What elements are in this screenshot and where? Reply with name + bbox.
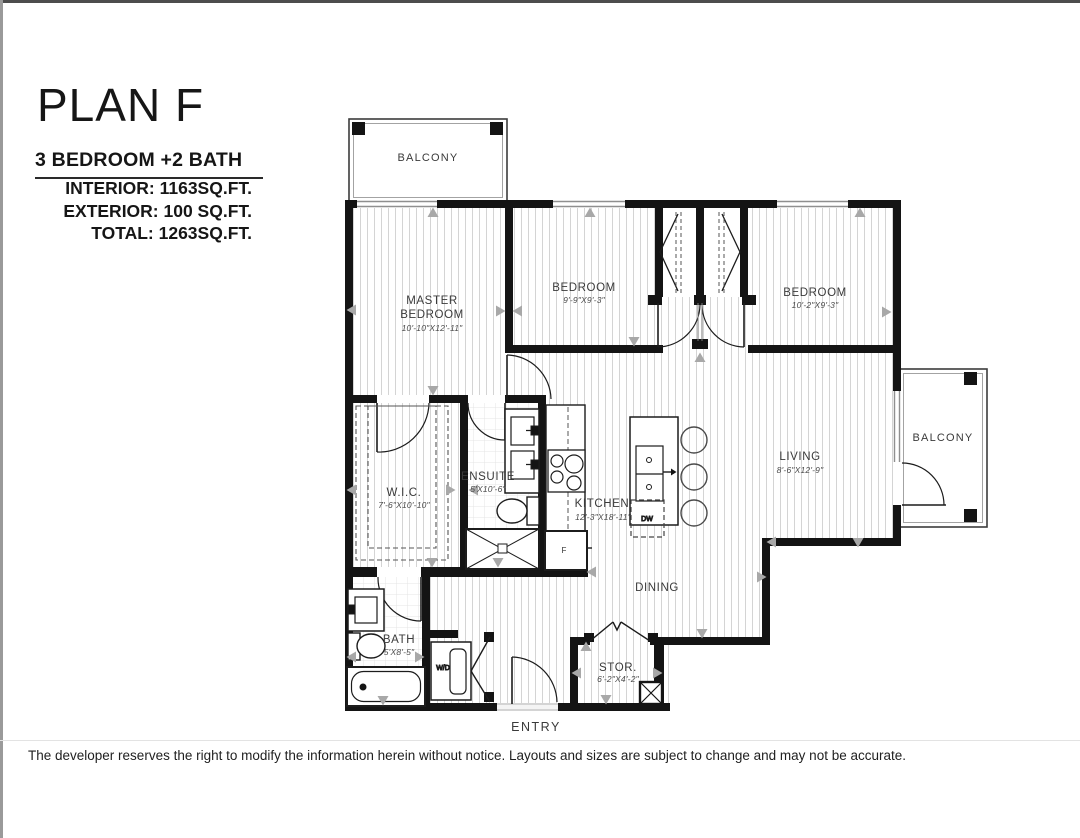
svg-text:BEDROOM: BEDROOM xyxy=(400,309,464,321)
fixture-kitchen-island: DW xyxy=(630,417,678,537)
window-bedroom2 xyxy=(777,200,848,208)
fixture-storage-box xyxy=(640,682,662,704)
spec-total: TOTAL: 1263SQ.FT. xyxy=(91,223,252,243)
cooktop-icon xyxy=(548,450,585,492)
window-left-edge xyxy=(0,0,3,838)
window-top-edge xyxy=(0,0,1080,3)
floor-plan-drawing: F DW xyxy=(330,95,1010,745)
window-living xyxy=(893,391,901,462)
svg-text:LIVING: LIVING xyxy=(779,451,820,463)
fixture-fridge: F xyxy=(545,531,592,570)
window-master xyxy=(357,200,437,208)
label-entry: ENTRY xyxy=(511,720,561,734)
fixture-ensuite-toilet xyxy=(497,497,539,525)
door-balcony xyxy=(902,463,946,505)
wd-label: W/D xyxy=(436,665,450,672)
plan-subtitle: 3 BEDROOM +2 BATH xyxy=(35,149,263,179)
fixture-washer-dryer: W/D xyxy=(431,642,471,700)
label-bath: BATH 5'X8'-5" xyxy=(383,634,415,657)
label-bedroom2: BEDROOM 10'-2"X9'-3" xyxy=(783,287,847,310)
svg-text:MASTER: MASTER xyxy=(406,295,458,307)
spec-interior: INTERIOR: 1163SQ.FT. xyxy=(65,178,252,198)
svg-text:10'-10"X12'-11": 10'-10"X12'-11" xyxy=(402,323,464,333)
svg-text:8'-6"X12'-9": 8'-6"X12'-9" xyxy=(777,465,824,475)
svg-text:12'-3"X18'-11": 12'-3"X18'-11" xyxy=(575,512,632,522)
footer-divider xyxy=(0,740,1080,741)
fixture-shower xyxy=(466,529,539,569)
disclaimer-text: The developer reserves the right to modi… xyxy=(28,748,906,763)
plan-specs: INTERIOR: 1163SQ.FT. EXTERIOR: 100 SQ.FT… xyxy=(37,177,252,245)
svg-text:6'-2"X4'-2": 6'-2"X4'-2" xyxy=(597,674,640,684)
label-balcony-top: BALCONY xyxy=(398,152,459,164)
svg-text:KITCHEN: KITCHEN xyxy=(575,498,630,510)
entry-threshold xyxy=(497,703,558,711)
svg-text:7'-6"X10'-10": 7'-6"X10'-10" xyxy=(378,500,430,510)
svg-text:BATH: BATH xyxy=(383,634,415,646)
svg-text:BEDROOM: BEDROOM xyxy=(552,282,616,294)
balcony-right-structure xyxy=(899,369,987,527)
label-dining: DINING xyxy=(635,582,679,594)
label-storage: STOR. 6'-2"X4'-2" xyxy=(597,662,640,684)
plan-title: PLAN F xyxy=(37,78,204,132)
svg-text:ENSUITE: ENSUITE xyxy=(461,471,515,483)
window-bedroom1 xyxy=(553,200,625,208)
fixture-bath-vanity xyxy=(348,589,384,631)
svg-text:9'-9"X9'-3": 9'-9"X9'-3" xyxy=(563,295,606,305)
label-master-bedroom: MASTER BEDROOM 10'-10"X12'-11" xyxy=(400,295,464,333)
svg-text:5'X10'-6": 5'X10'-6" xyxy=(470,484,506,494)
spec-exterior: EXTERIOR: 100 SQ.FT. xyxy=(63,201,252,221)
svg-text:W.I.C.: W.I.C. xyxy=(387,487,422,499)
dishwasher-label: DW xyxy=(641,516,653,523)
floorplan-page: PLAN F 3 BEDROOM +2 BATH INTERIOR: 1163S… xyxy=(0,0,1080,838)
svg-text:BEDROOM: BEDROOM xyxy=(783,287,847,299)
svg-text:STOR.: STOR. xyxy=(599,662,637,674)
svg-text:5'X8'-5": 5'X8'-5" xyxy=(384,647,415,657)
label-balcony-right: BALCONY xyxy=(913,432,974,444)
svg-text:10'-2"X9'-3": 10'-2"X9'-3" xyxy=(792,300,839,310)
fridge-label: F xyxy=(562,546,567,555)
